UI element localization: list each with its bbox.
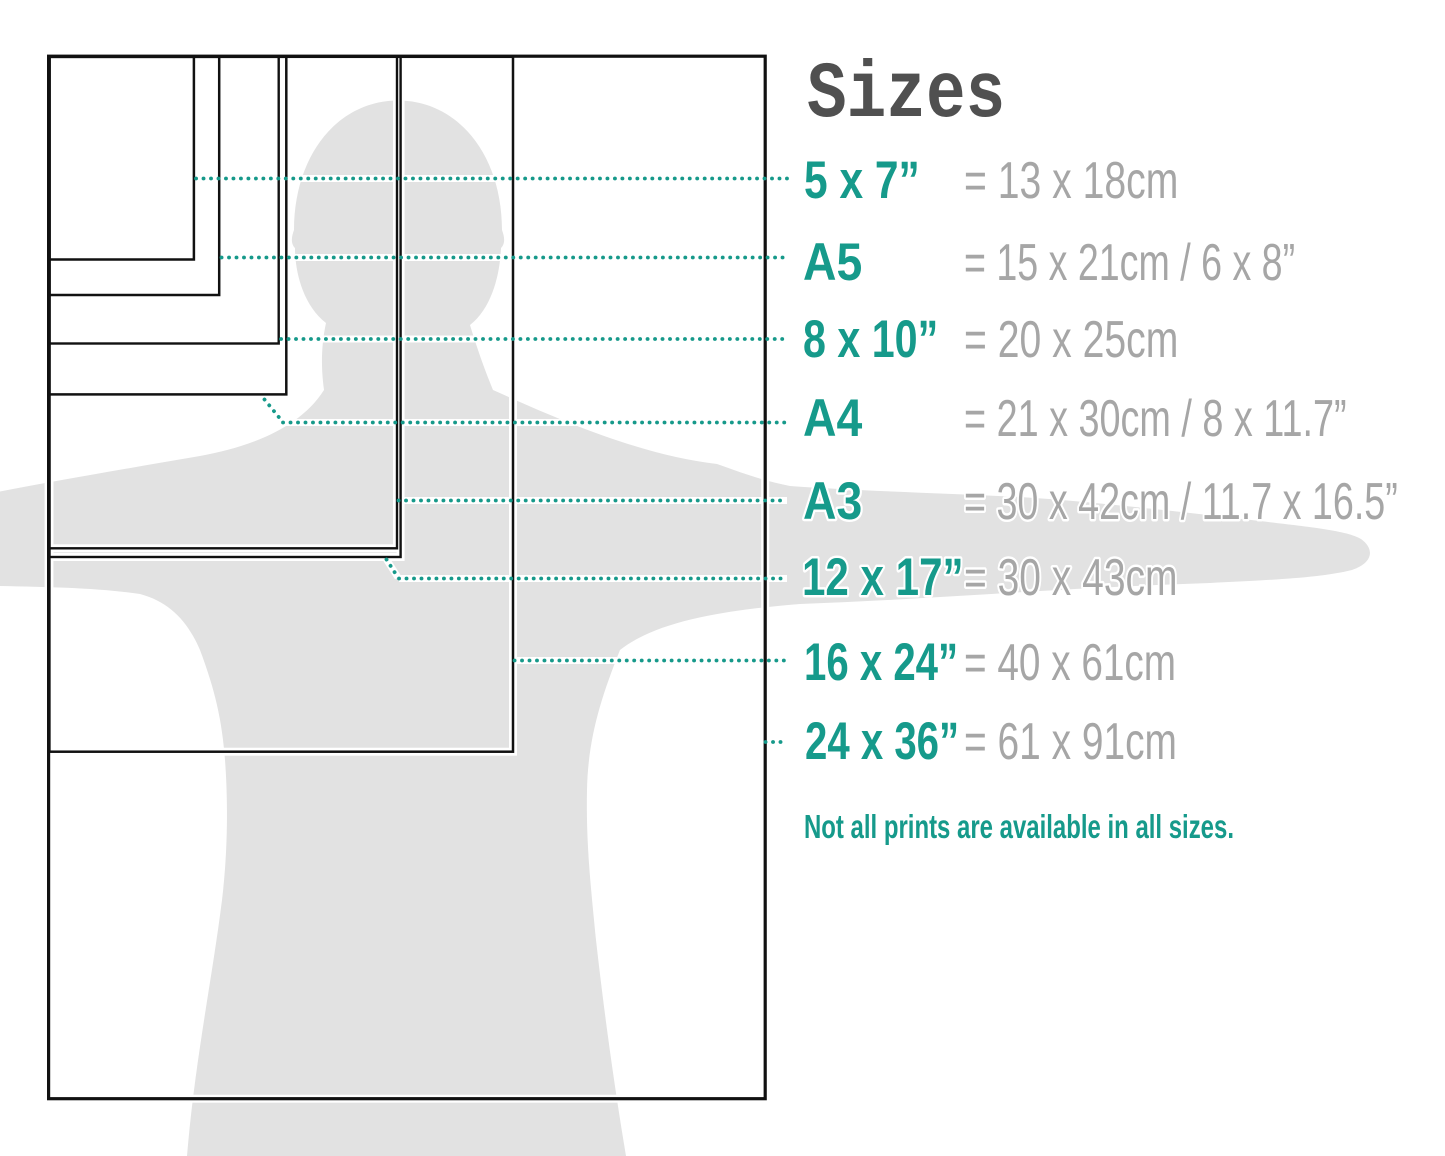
svg-text:= 30 x 43cm: = 30 x 43cm — [964, 547, 1177, 606]
svg-text:5 x 7”: 5 x 7” — [804, 152, 920, 210]
svg-text:8 x 10”: 8 x 10” — [803, 310, 938, 369]
svg-text:= 61 x 91cm: = 61 x 91cm — [964, 711, 1177, 770]
svg-text:16 x 24”: 16 x 24” — [804, 632, 958, 692]
svg-text:12 x 17”: 12 x 17” — [802, 549, 964, 608]
svg-text:= 13 x 18cm: = 13 x 18cm — [964, 151, 1178, 210]
svg-text:Sizes: Sizes — [807, 51, 1005, 141]
svg-text:= 20 x 25cm: = 20 x 25cm — [964, 310, 1178, 369]
svg-text:= 30 x 42cm / 11.7 x 16.5”: = 30 x 42cm / 11.7 x 16.5” — [964, 472, 1398, 530]
svg-text:Not all prints are available i: Not all prints are available in all size… — [804, 809, 1234, 846]
svg-text:A3: A3 — [803, 471, 862, 531]
svg-text:= 40 x 61cm: = 40 x 61cm — [964, 632, 1176, 691]
svg-text:= 15 x 21cm / 6 x 8”: = 15 x 21cm / 6 x 8” — [964, 233, 1295, 291]
svg-text:A4: A4 — [803, 388, 863, 448]
svg-text:24 x 36”: 24 x 36” — [805, 711, 959, 771]
svg-text:= 21 x 30cm / 8 x 11.7”: = 21 x 30cm / 8 x 11.7” — [964, 389, 1347, 447]
svg-text:A5: A5 — [803, 232, 862, 292]
